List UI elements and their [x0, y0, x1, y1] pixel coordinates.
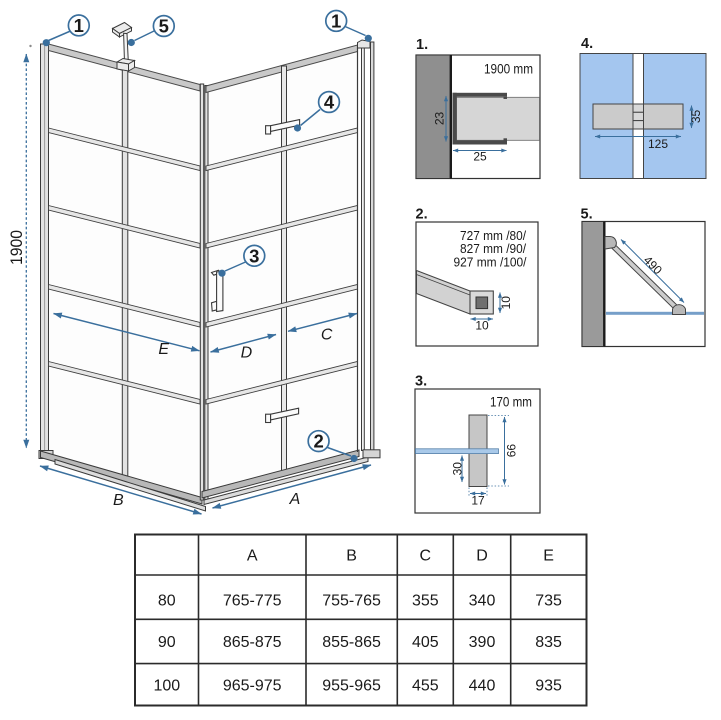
svg-text:D: D: [476, 548, 488, 565]
svg-text:E: E: [158, 341, 169, 358]
svg-text:3: 3: [249, 245, 259, 266]
svg-text:2: 2: [313, 431, 323, 452]
svg-text:405: 405: [412, 634, 439, 651]
svg-text:340: 340: [469, 593, 496, 610]
svg-text:765-775: 765-775: [223, 593, 282, 610]
svg-text:E: E: [543, 548, 554, 565]
svg-text:1: 1: [74, 15, 84, 36]
svg-text:100: 100: [153, 678, 180, 695]
svg-text:2.: 2.: [416, 207, 428, 223]
svg-text:965-975: 965-975: [223, 678, 282, 695]
svg-text:170 mm: 170 mm: [490, 394, 532, 410]
svg-text:865-875: 865-875: [223, 634, 282, 651]
svg-text:A: A: [289, 491, 301, 508]
svg-text:25: 25: [473, 149, 487, 163]
svg-text:955-965: 955-965: [322, 678, 381, 695]
svg-text:B: B: [346, 548, 357, 565]
svg-text:927 mm /100/: 927 mm /100/: [454, 255, 527, 269]
svg-text:935: 935: [535, 678, 562, 695]
svg-text:455: 455: [412, 678, 439, 695]
svg-text:835: 835: [535, 634, 562, 651]
svg-text:80: 80: [158, 593, 176, 610]
svg-text:35: 35: [689, 110, 703, 124]
svg-text:3.: 3.: [415, 374, 427, 390]
svg-text:D: D: [241, 345, 253, 362]
svg-text:4: 4: [324, 92, 335, 113]
svg-text:1: 1: [331, 10, 341, 31]
svg-text:1900: 1900: [7, 230, 26, 265]
svg-text:827 mm /90/: 827 mm /90/: [460, 242, 526, 256]
svg-text:735: 735: [535, 593, 562, 610]
svg-text:755-765: 755-765: [322, 593, 381, 610]
svg-text:727 mm /80/: 727 mm /80/: [460, 229, 526, 243]
svg-text:1.: 1.: [416, 37, 428, 53]
svg-text:C: C: [420, 548, 432, 565]
svg-text:4.: 4.: [581, 36, 593, 52]
svg-text:30: 30: [451, 462, 465, 476]
svg-text:355: 355: [412, 593, 439, 610]
svg-text:1900 mm: 1900 mm: [484, 61, 533, 77]
svg-text:10: 10: [475, 319, 489, 333]
svg-text:C: C: [321, 326, 333, 343]
svg-text:B: B: [113, 492, 124, 509]
svg-text:17: 17: [471, 494, 485, 508]
svg-text:90: 90: [158, 634, 176, 651]
svg-text:5: 5: [159, 16, 169, 37]
svg-text:23: 23: [433, 112, 447, 126]
svg-text:390: 390: [469, 634, 496, 651]
svg-text:5.: 5.: [581, 207, 593, 223]
svg-text:855-865: 855-865: [322, 634, 381, 651]
svg-text:66: 66: [505, 444, 519, 458]
svg-text:125: 125: [648, 137, 668, 151]
svg-text:A: A: [247, 548, 258, 565]
svg-text:440: 440: [469, 678, 496, 695]
svg-text:10: 10: [499, 296, 513, 310]
